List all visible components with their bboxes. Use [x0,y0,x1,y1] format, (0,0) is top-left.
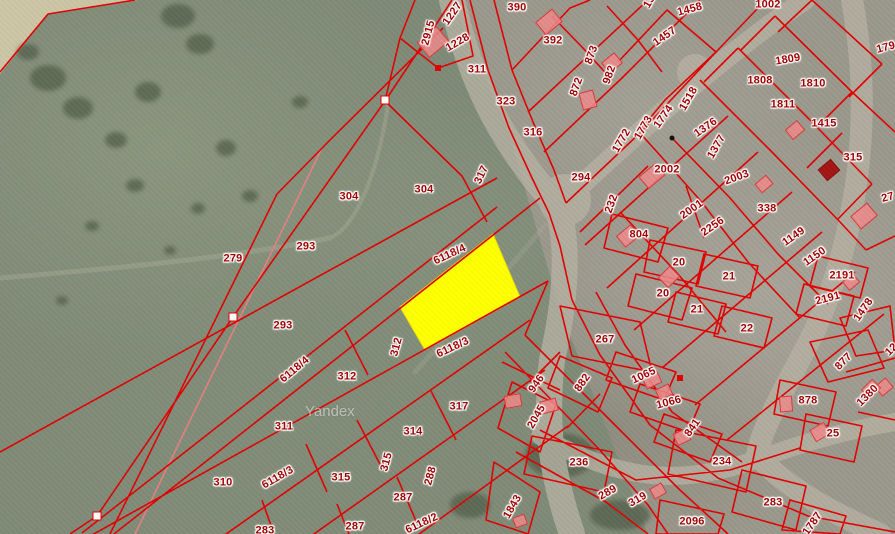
parcel-label[interactable]: 804 [630,230,649,241]
parcel-label[interactable]: 1002 [755,0,780,11]
parcel-label[interactable]: 287 [346,522,365,533]
parcel-label[interactable]: 392 [544,36,563,47]
parcel-label[interactable]: 236 [570,458,589,469]
parcel-label[interactable]: 27 [880,191,895,205]
parcel-label[interactable]: 1810 [800,79,825,90]
parcel-label[interactable]: 267 [596,335,615,346]
parcel-label[interactable]: 288 [423,465,439,486]
parcel-label[interactable]: 25 [827,429,840,440]
parcel-labels-layer: 1227291512283903928739828723113233161314… [0,0,895,534]
parcel-label[interactable]: 1518 [678,85,700,112]
parcel-label[interactable]: 2191 [814,290,841,307]
parcel-label[interactable]: 311 [275,422,293,433]
parcel-label[interactable]: 1478 [852,296,876,323]
parcel-label[interactable]: 315 [844,153,863,164]
parcel-label[interactable]: 20 [673,258,686,269]
parcel-label[interactable]: 315 [332,473,351,484]
parcel-label[interactable]: 1228 [444,32,471,54]
parcel-label[interactable]: 294 [572,173,591,184]
parcel-label[interactable]: 21 [691,305,704,316]
parcel-label[interactable]: 877 [833,351,854,372]
parcel-label[interactable]: 315 [379,451,395,472]
parcel-label[interactable]: 304 [340,192,359,203]
parcel-label[interactable]: 873 [584,44,601,66]
parcel-label[interactable]: 21 [723,272,736,283]
parcel-label[interactable]: 1787 [801,510,825,534]
yandex-watermark: Yandex [305,403,355,420]
parcel-label[interactable]: 311 [468,65,486,76]
parcel-label[interactable]: 1843 [502,493,524,520]
parcel-label[interactable]: 234 [713,457,732,468]
parcel-label[interactable]: 283 [256,526,275,534]
parcel-label[interactable]: 882 [573,372,593,394]
parcel-label[interactable]: 6118/3 [435,336,471,360]
parcel-label[interactable]: 319 [627,490,649,509]
parcel-label[interactable]: 6118/3 [260,465,295,492]
parcel-label[interactable]: 1149 [781,225,808,248]
parcel-label[interactable]: 1772 [611,127,633,154]
parcel-label[interactable]: 293 [297,242,316,253]
map-canvas[interactable]: 1227291512283903928739828723113233161314… [0,0,895,534]
parcel-label[interactable]: 22 [741,324,754,335]
parcel-label[interactable]: 1150 [802,245,829,268]
parcel-label[interactable]: 1774 [652,103,676,130]
parcel-label[interactable]: 982 [602,64,619,86]
parcel-label[interactable]: 1066 [655,394,682,411]
parcel-label[interactable]: 6118/2 [404,512,440,534]
parcel-label[interactable]: 2191 [829,271,854,282]
parcel-label[interactable]: 310 [214,478,233,489]
parcel-label[interactable]: 1811 [771,100,796,111]
parcel-label[interactable]: 1227 [441,0,465,27]
parcel-label[interactable]: 1065 [630,366,658,387]
parcel-label[interactable]: 1380 [855,383,881,409]
parcel-label[interactable]: 841 [683,417,703,439]
parcel-label[interactable]: 6118/4 [278,355,311,385]
parcel-label[interactable]: 312 [389,336,405,357]
parcel-label[interactable]: 279 [224,254,243,265]
parcel-label[interactable]: 314 [404,427,423,438]
parcel-label[interactable]: 1458 [676,1,703,18]
parcel-label[interactable]: 390 [508,3,527,14]
parcel-label[interactable]: 317 [450,402,469,413]
parcel-label[interactable]: 287 [394,493,413,504]
parcel-label[interactable]: 13 [642,0,658,10]
parcel-label[interactable]: 1377 [706,133,728,160]
parcel-label[interactable]: 2096 [679,517,704,528]
parcel-label[interactable]: 2002 [654,165,679,176]
parcel-label[interactable]: 1773 [633,114,655,141]
parcel-label[interactable]: 1809 [775,52,802,67]
parcel-label[interactable]: 6118/4 [432,243,468,267]
parcel-label[interactable]: 872 [569,76,586,98]
parcel-label[interactable]: 304 [415,185,434,196]
parcel-label[interactable]: 2001 [678,198,705,222]
parcel-label[interactable]: 323 [497,97,516,108]
parcel-label[interactable]: 283 [764,498,783,509]
parcel-label[interactable]: 2915 [420,19,437,46]
parcel-label[interactable]: 2003 [723,169,751,188]
parcel-label[interactable]: 289 [597,483,619,502]
parcel-label[interactable]: 20 [657,289,670,300]
parcel-label[interactable]: 12 [884,342,895,359]
parcel-label[interactable]: 179 [875,40,895,56]
parcel-label[interactable]: 1808 [747,76,772,87]
parcel-label[interactable]: 1457 [651,25,678,49]
parcel-label[interactable]: 232 [604,193,621,215]
parcel-label[interactable]: 317 [473,164,491,186]
parcel-label[interactable]: 316 [524,128,543,139]
parcel-label[interactable]: 946 [527,373,547,395]
parcel-label[interactable]: 293 [274,321,293,332]
parcel-label[interactable]: 2045 [526,403,548,430]
parcel-label[interactable]: 878 [799,396,818,407]
parcel-label[interactable]: 312 [338,372,357,383]
parcel-label[interactable]: 1415 [811,119,836,130]
parcel-label[interactable]: 2256 [699,215,726,239]
parcel-label[interactable]: 338 [758,204,777,215]
